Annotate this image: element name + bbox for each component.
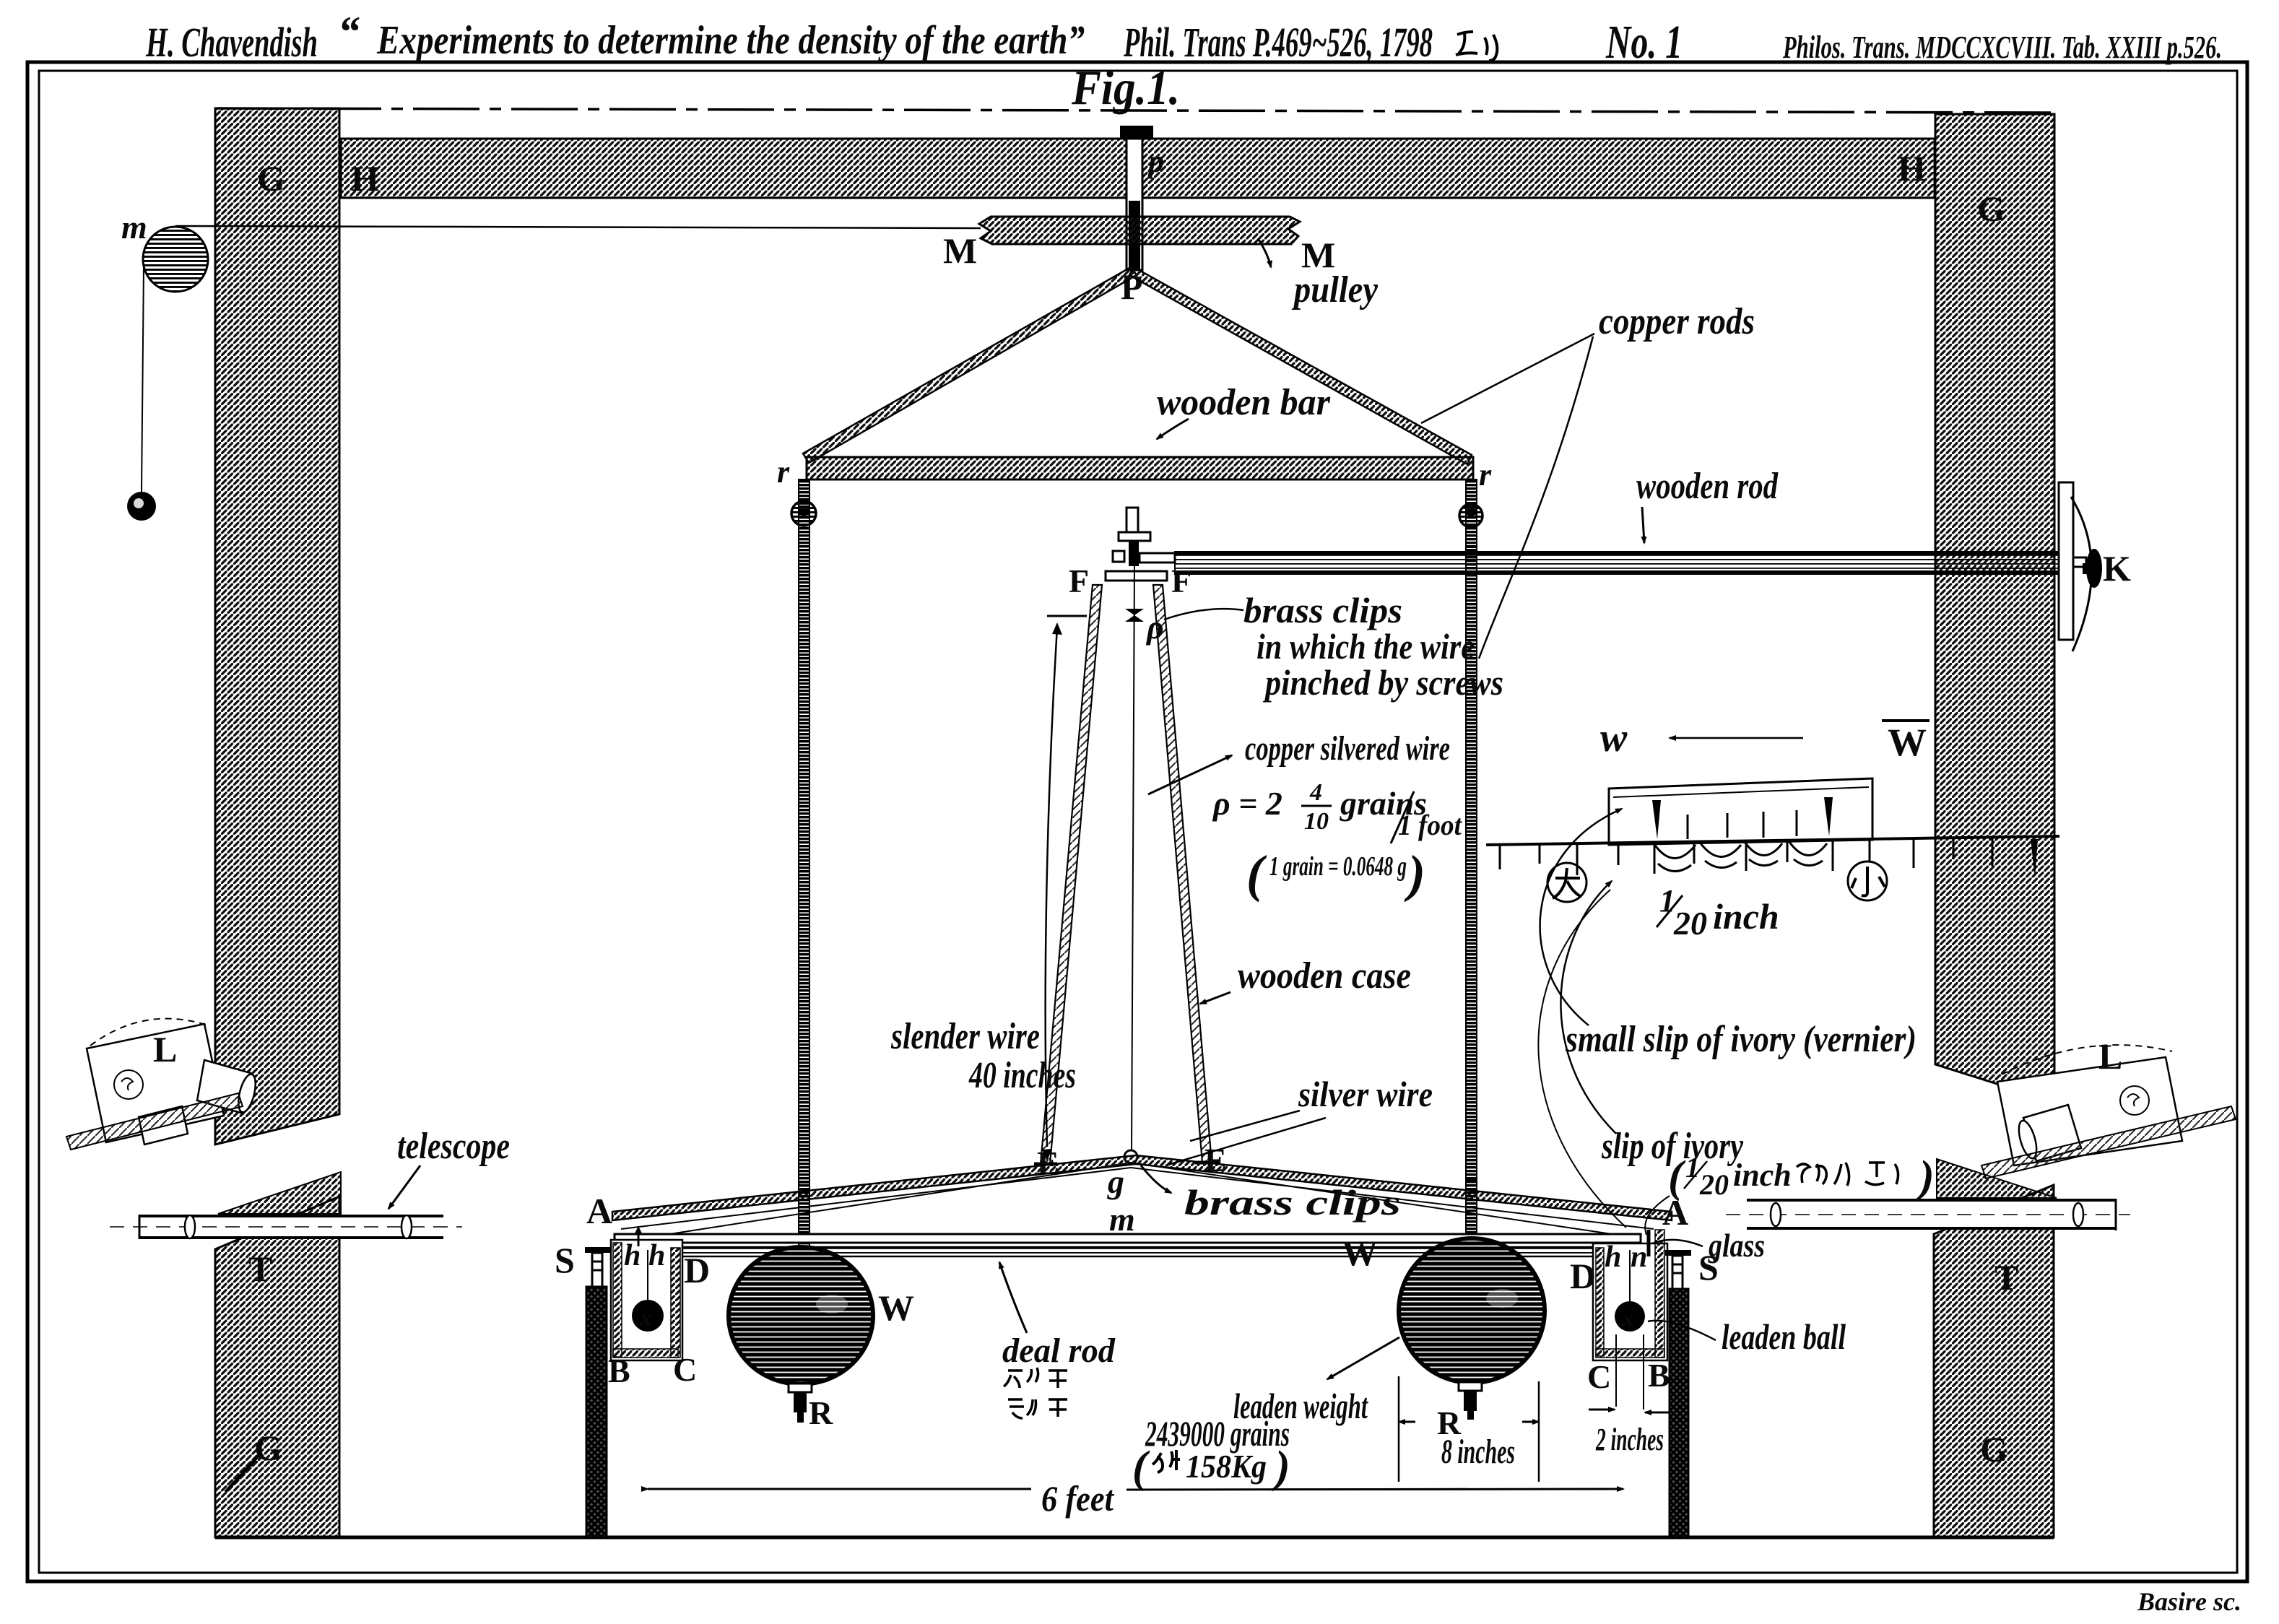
svg-text:40 inches: 40 inches <box>968 1055 1076 1096</box>
svg-text:20: 20 <box>1673 905 1707 942</box>
svg-text:h: h <box>648 1239 665 1272</box>
svg-text:W: W <box>878 1288 914 1328</box>
svg-text:Fig.1.: Fig.1. <box>1071 60 1180 115</box>
svg-text:brass clips: brass clips <box>1243 590 1402 630</box>
svg-text:H. Chavendish: H. Chavendish <box>145 19 318 66</box>
svg-text:r: r <box>777 454 790 490</box>
svg-text:p: p <box>1145 144 1164 179</box>
svg-text:G: G <box>1980 1429 2008 1469</box>
svg-text:glass: glass <box>1708 1227 1765 1264</box>
svg-text:copper silvered wire: copper silvered wire <box>1245 729 1450 768</box>
svg-text:T: T <box>248 1249 272 1289</box>
svg-text:B: B <box>608 1352 630 1389</box>
svg-text:w: w <box>1600 716 1628 760</box>
svg-text:m: m <box>1109 1201 1135 1238</box>
svg-text:S: S <box>555 1240 575 1280</box>
svg-text:B: B <box>1648 1357 1670 1394</box>
svg-text:W: W <box>1342 1233 1378 1273</box>
svg-text:n: n <box>1631 1241 1647 1274</box>
svg-text:wooden case: wooden case <box>1238 955 1411 996</box>
svg-text:1 grain = 0.0648 g: 1 grain = 0.0648 g <box>1269 851 1407 882</box>
svg-text:F: F <box>1171 563 1191 599</box>
svg-text:h: h <box>1605 1241 1621 1274</box>
svg-text:brass clips: brass clips <box>1184 1182 1401 1223</box>
svg-text:r: r <box>1479 457 1492 492</box>
svg-text:C: C <box>673 1351 697 1388</box>
svg-text:C: C <box>1587 1358 1611 1395</box>
svg-text:telescope: telescope <box>397 1126 510 1167</box>
svg-text:F: F <box>1069 563 1089 599</box>
svg-text:deal rod: deal rod <box>1002 1332 1116 1370</box>
svg-text:L: L <box>2098 1036 2122 1077</box>
svg-text:Basire sc.: Basire sc. <box>2137 1587 2241 1616</box>
svg-text:A: A <box>586 1191 612 1231</box>
svg-text:x: x <box>1621 1306 1634 1332</box>
svg-text:Phil. Trans P.469~526, 1798: Phil. Trans P.469~526, 1798 <box>1123 19 1433 66</box>
svg-text:Philos. Trans. MDCCXCVIII. Tab: Philos. Trans. MDCCXCVIII. Tab. XXIII p.… <box>1782 30 2222 65</box>
svg-text:wooden bar: wooden bar <box>1157 382 1331 423</box>
svg-text:20: 20 <box>1699 1168 1729 1201</box>
svg-text:H: H <box>1898 148 1926 188</box>
svg-text:D: D <box>1570 1256 1596 1296</box>
svg-text:8 inches: 8 inches <box>1441 1433 1515 1471</box>
svg-text:D: D <box>684 1250 710 1290</box>
svg-text:silver wire: silver wire <box>1298 1074 1433 1114</box>
svg-text:slender wire: slender wire <box>890 1016 1040 1057</box>
svg-text:No. 1: No. 1 <box>1605 16 1683 69</box>
svg-text:wooden rod: wooden rod <box>1636 466 1779 507</box>
svg-text:leaden ball: leaden ball <box>1722 1316 1846 1357</box>
svg-text:G: G <box>254 1428 282 1468</box>
svg-text:ρ = 2: ρ = 2 <box>1212 785 1282 822</box>
svg-text:in which the wire: in which the wire <box>1256 626 1475 666</box>
svg-text:W: W <box>1888 721 1927 764</box>
svg-text:Experiments to determine the d: Experiments to determine the density of … <box>376 18 1085 63</box>
svg-text:inch: inch <box>1733 1158 1792 1193</box>
svg-text:x: x <box>639 1305 652 1332</box>
svg-text:K: K <box>2103 548 2131 589</box>
svg-text:“: “ <box>338 8 360 56</box>
svg-text:small slip of ivory (vernier): small slip of ivory (vernier) <box>1565 1019 1916 1060</box>
svg-text:158Kg: 158Kg <box>1186 1448 1267 1485</box>
svg-text:4: 4 <box>1309 779 1322 806</box>
svg-text:6 feet: 6 feet <box>1041 1478 1115 1519</box>
svg-text:2 inches: 2 inches <box>1595 1422 1664 1457</box>
svg-text:L: L <box>153 1029 177 1069</box>
svg-text:G: G <box>1977 188 2005 229</box>
svg-text:M: M <box>943 230 977 271</box>
svg-text:m: m <box>121 209 147 246</box>
svg-text:1 foot: 1 foot <box>1398 809 1463 841</box>
svg-text:inch: inch <box>1713 896 1779 937</box>
svg-text:R: R <box>809 1394 833 1431</box>
svg-text:ρ: ρ <box>1145 609 1164 646</box>
svg-text:G: G <box>257 158 285 199</box>
svg-text:pulley: pulley <box>1291 269 1378 311</box>
svg-text:copper rods: copper rods <box>1599 301 1755 342</box>
svg-text:H: H <box>351 158 379 199</box>
svg-text:T: T <box>1994 1257 2018 1298</box>
svg-text:pinched by screws: pinched by screws <box>1262 662 1503 703</box>
svg-text:10: 10 <box>1304 808 1329 835</box>
